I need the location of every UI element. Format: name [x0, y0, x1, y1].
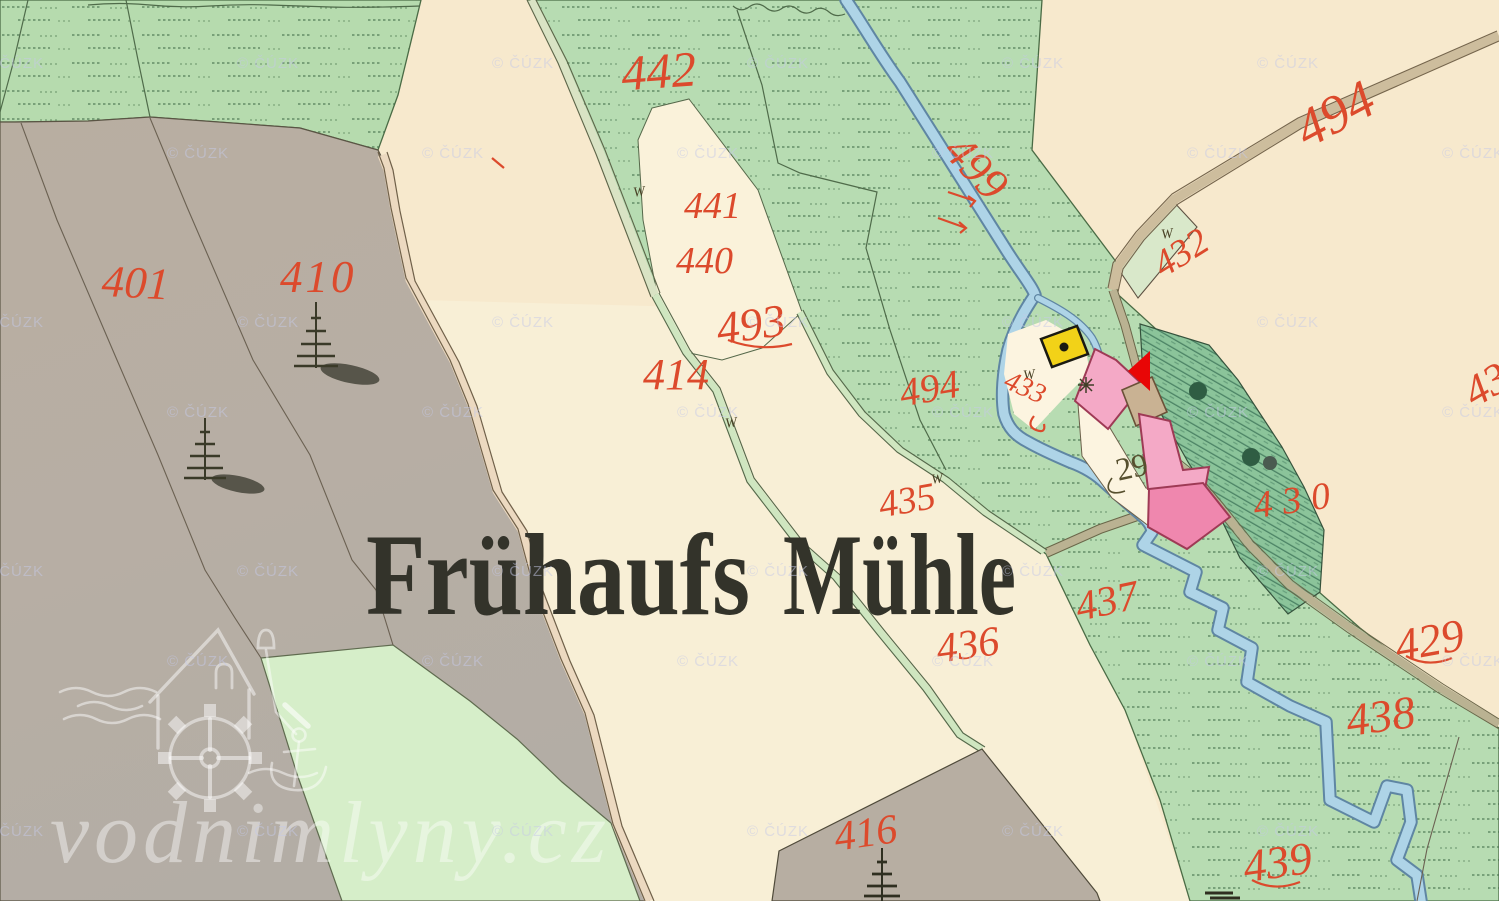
- svg-text:© ČÚZK: © ČÚZK: [0, 55, 44, 72]
- svg-text:© ČÚZK: © ČÚZK: [747, 314, 809, 331]
- svg-text:440: 440: [676, 240, 733, 282]
- svg-text:© ČÚZK: © ČÚZK: [167, 404, 229, 421]
- svg-text:Frühaufs: Frühaufs: [366, 511, 750, 640]
- svg-text:© ČÚZK: © ČÚZK: [1187, 404, 1249, 421]
- svg-text:© ČÚZK: © ČÚZK: [167, 653, 229, 670]
- svg-text:414: 414: [643, 350, 709, 399]
- svg-text:410: 410: [280, 252, 357, 302]
- svg-text:© ČÚZK: © ČÚZK: [1187, 145, 1249, 162]
- svg-text:© ČÚZK: © ČÚZK: [1442, 653, 1499, 670]
- svg-text:© ČÚZK: © ČÚZK: [0, 563, 44, 580]
- svg-text:© ČÚZK: © ČÚZK: [1257, 823, 1319, 840]
- svg-text:© ČÚZK: © ČÚZK: [747, 823, 809, 840]
- svg-text:442: 442: [619, 40, 698, 101]
- svg-text:© ČÚZK: © ČÚZK: [1002, 823, 1064, 840]
- svg-text:© ČÚZK: © ČÚZK: [422, 404, 484, 421]
- svg-text:© ČÚZK: © ČÚZK: [932, 145, 994, 162]
- svg-text:© ČÚZK: © ČÚZK: [1002, 563, 1064, 580]
- svg-text:© ČÚZK: © ČÚZK: [237, 55, 299, 72]
- svg-text:© ČÚZK: © ČÚZK: [0, 314, 44, 331]
- svg-text:439: 439: [1240, 832, 1315, 892]
- svg-text:© ČÚZK: © ČÚZK: [237, 314, 299, 331]
- svg-text:© ČÚZK: © ČÚZK: [677, 653, 739, 670]
- svg-text:© ČÚZK: © ČÚZK: [1257, 314, 1319, 331]
- svg-text:© ČÚZK: © ČÚZK: [747, 55, 809, 72]
- svg-text:© ČÚZK: © ČÚZK: [747, 563, 809, 580]
- svg-text:© ČÚZK: © ČÚZK: [492, 563, 554, 580]
- svg-text:© ČÚZK: © ČÚZK: [492, 823, 554, 840]
- svg-text:© ČÚZK: © ČÚZK: [932, 653, 994, 670]
- svg-text:441: 441: [684, 185, 741, 227]
- svg-text:416: 416: [831, 806, 900, 860]
- svg-text:© ČÚZK: © ČÚZK: [677, 404, 739, 421]
- svg-text:© ČÚZK: © ČÚZK: [492, 55, 554, 72]
- svg-text:© ČÚZK: © ČÚZK: [422, 145, 484, 162]
- svg-text:© ČÚZK: © ČÚZK: [1002, 314, 1064, 331]
- svg-text:© ČÚZK: © ČÚZK: [492, 314, 554, 331]
- svg-text:© ČÚZK: © ČÚZK: [677, 145, 739, 162]
- svg-text:438: 438: [1343, 686, 1418, 746]
- svg-text:© ČÚZK: © ČÚZK: [1257, 55, 1319, 72]
- svg-text:© ČÚZK: © ČÚZK: [1442, 404, 1499, 421]
- svg-text:© ČÚZK: © ČÚZK: [1187, 653, 1249, 670]
- svg-text:© ČÚZK: © ČÚZK: [1257, 563, 1319, 580]
- svg-text:© ČÚZK: © ČÚZK: [167, 145, 229, 162]
- svg-text:© ČÚZK: © ČÚZK: [237, 563, 299, 580]
- svg-text:© ČÚZK: © ČÚZK: [0, 823, 44, 840]
- svg-text:© ČÚZK: © ČÚZK: [932, 404, 994, 421]
- svg-text:© ČÚZK: © ČÚZK: [422, 653, 484, 670]
- svg-text:© ČÚZK: © ČÚZK: [1442, 145, 1499, 162]
- svg-text:© ČÚZK: © ČÚZK: [237, 823, 299, 840]
- svg-text:401: 401: [101, 256, 171, 309]
- svg-text:© ČÚZK: © ČÚZK: [1002, 55, 1064, 72]
